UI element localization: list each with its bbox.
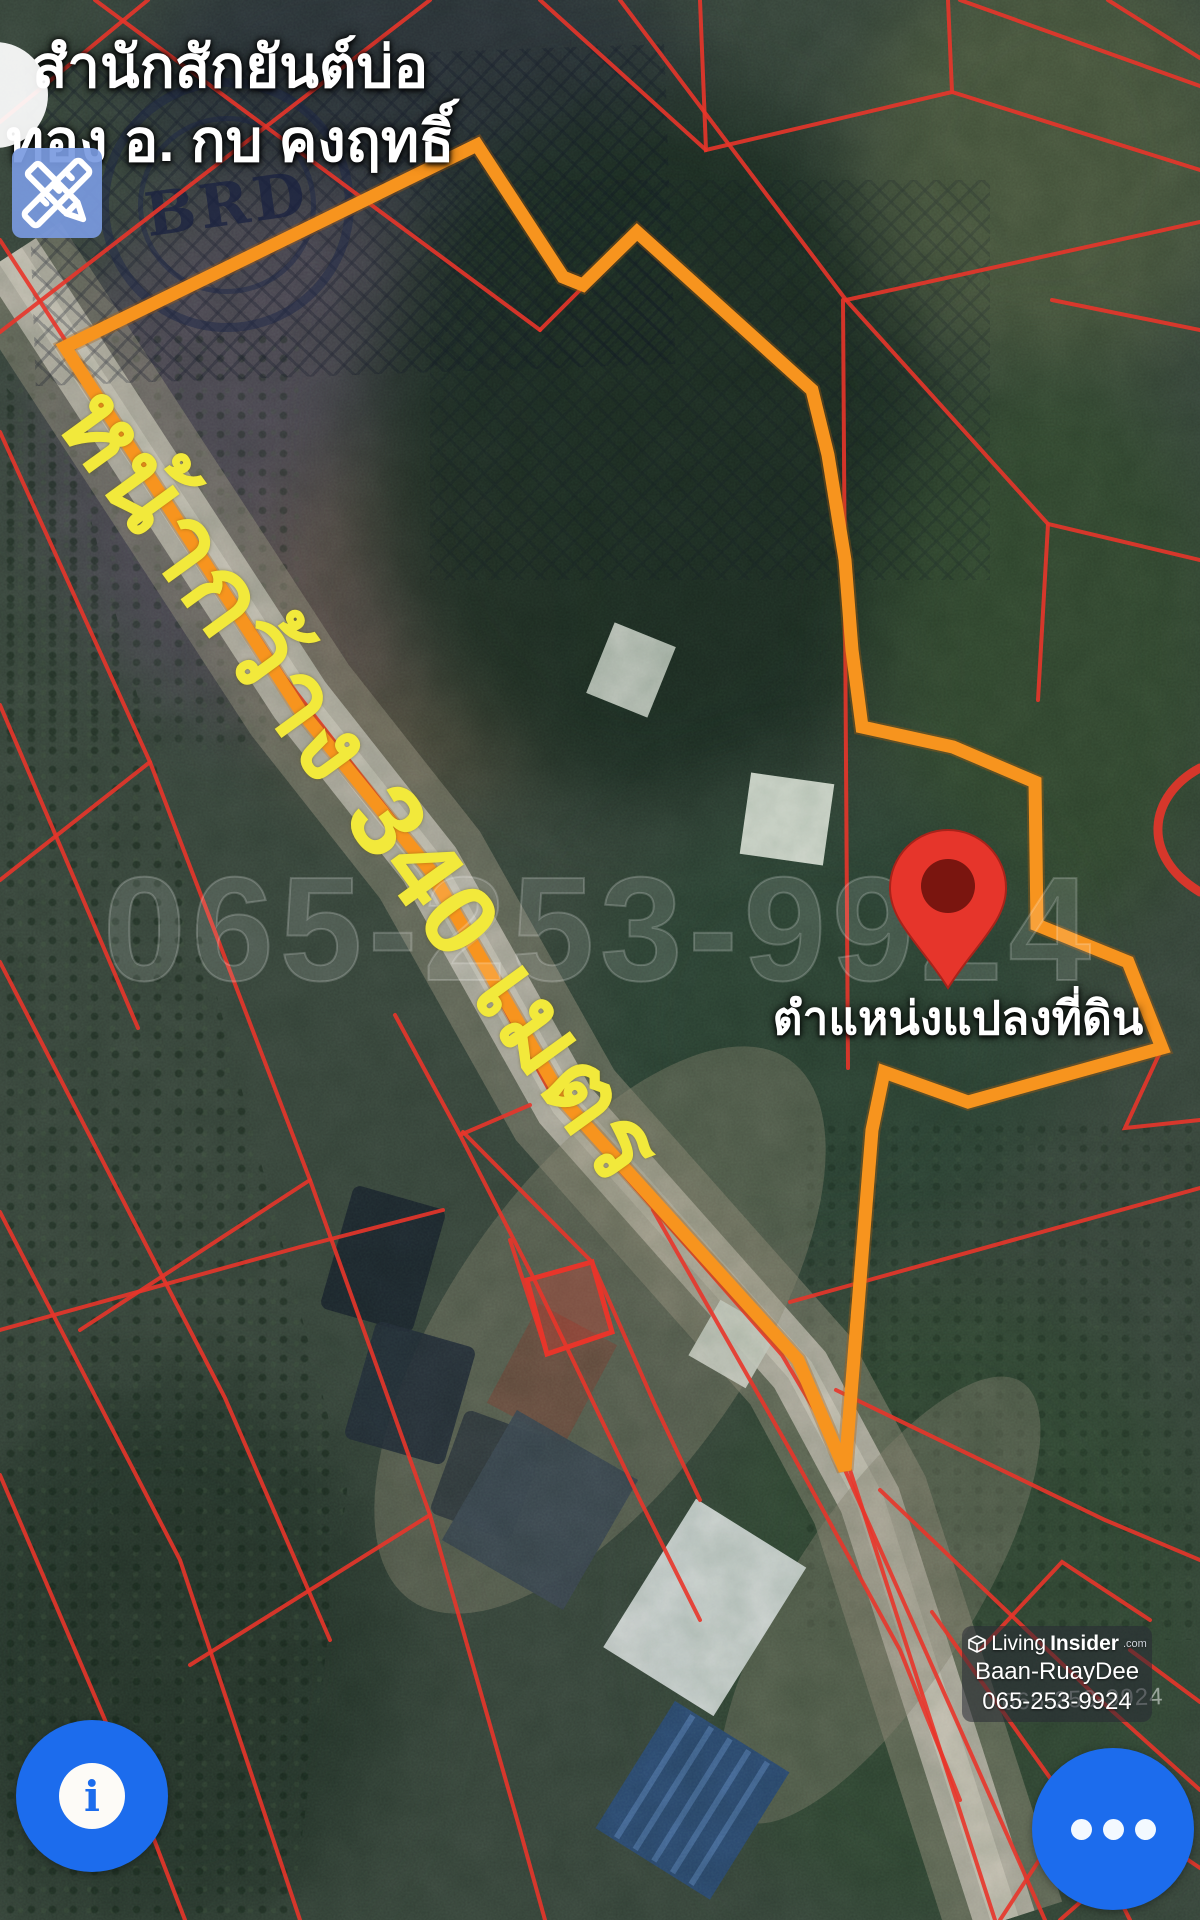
pencil-ruler-icon <box>12 148 102 238</box>
plot-boundary-polygon <box>65 145 1162 1470</box>
more-options-button[interactable] <box>1032 1748 1194 1910</box>
info-icon: i <box>59 1763 125 1829</box>
brand-prefix: Living <box>991 1632 1046 1656</box>
location-pin[interactable] <box>870 810 1030 1000</box>
more-dots-icon <box>1103 1819 1124 1840</box>
info-button[interactable]: i <box>16 1720 168 1872</box>
satellite-map-canvas[interactable]: BRD <box>0 0 1200 1920</box>
edit-tools-button[interactable] <box>12 148 102 238</box>
agent-name: Baan-RuayDee <box>975 1658 1139 1686</box>
more-dots-icon <box>1135 1819 1156 1840</box>
brand-tld: .com <box>1123 1638 1147 1650</box>
brand-suffix: Insider <box>1050 1632 1119 1656</box>
more-dots-icon <box>1071 1819 1092 1840</box>
livinginsider-brand: LivingInsider.com <box>967 1632 1147 1656</box>
livinginsider-watermark-card: LivingInsider.com Baan-RuayDee 065-253-9… <box>962 1626 1152 1722</box>
livinginsider-logo-icon <box>967 1634 987 1654</box>
agent-phone: 065-253-9924 <box>982 1688 1131 1716</box>
pin-label: ตำแหน่งแปลงที่ดิน <box>758 982 1158 1055</box>
